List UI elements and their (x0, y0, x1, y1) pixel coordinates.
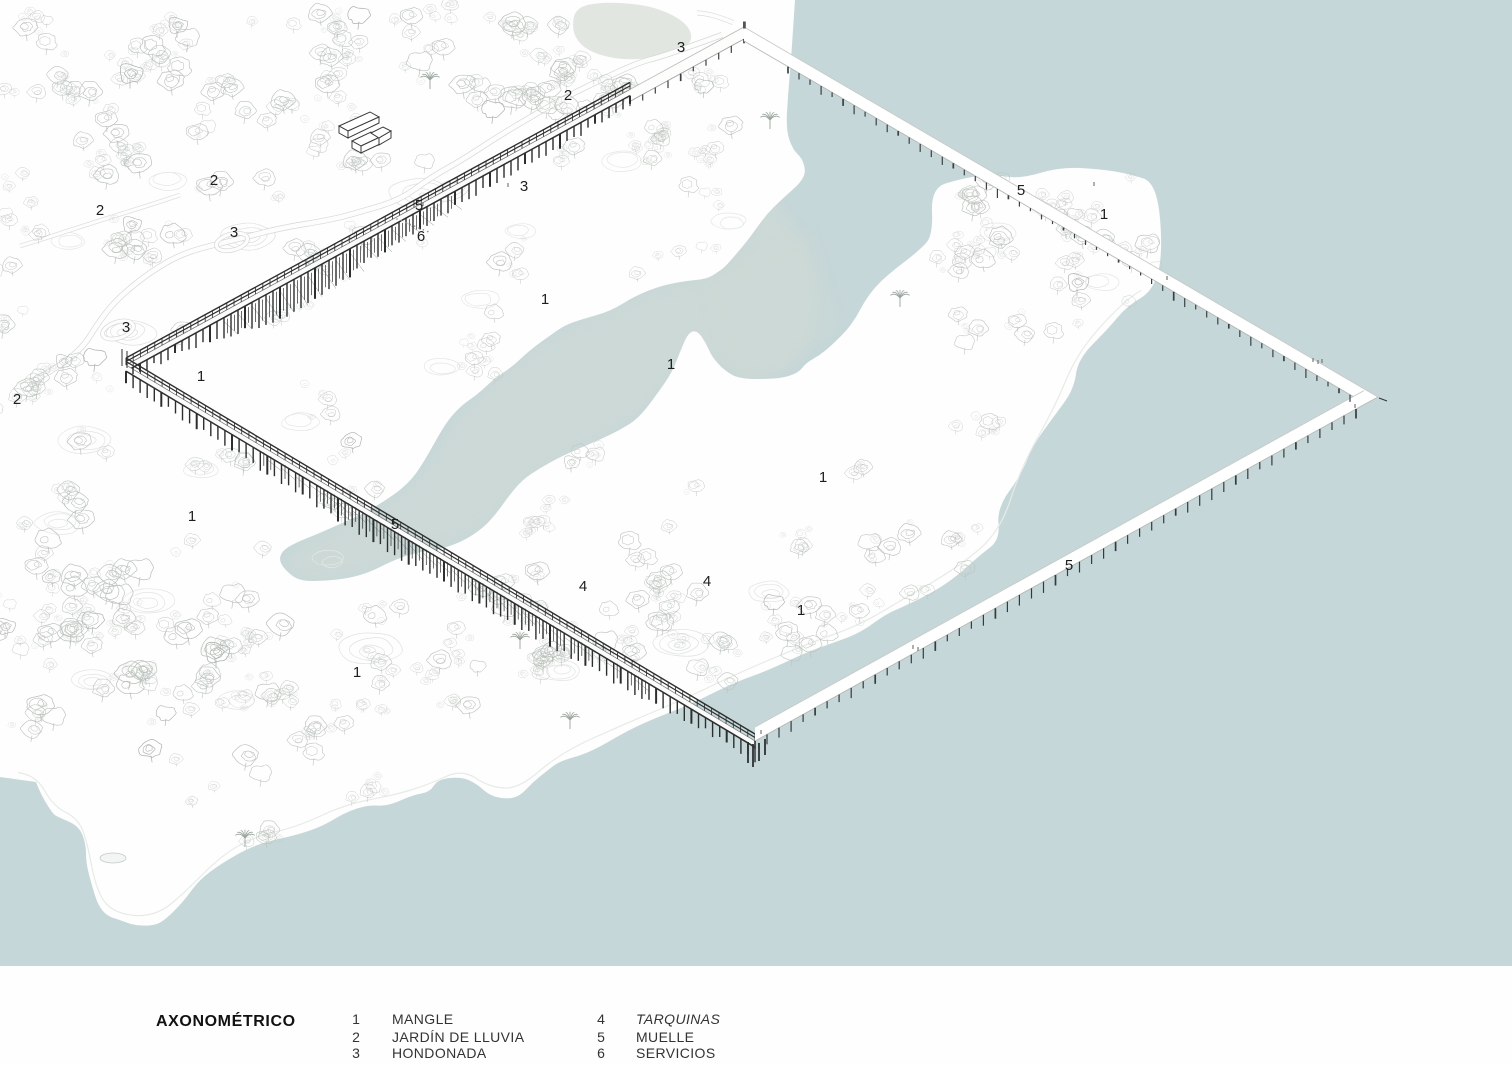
svg-text:2: 2 (352, 1029, 360, 1045)
svg-text:AXONOMÉTRICO: AXONOMÉTRICO (156, 1011, 296, 1030)
svg-text:4: 4 (597, 1011, 605, 1027)
svg-text:HONDONADA: HONDONADA (392, 1045, 487, 1061)
svg-text:3: 3 (520, 178, 528, 195)
svg-text:1: 1 (352, 1011, 360, 1027)
svg-text:1: 1 (197, 368, 205, 385)
svg-text:3: 3 (122, 319, 130, 336)
svg-text:5: 5 (415, 197, 423, 214)
svg-text:5: 5 (1065, 557, 1073, 574)
svg-text:1: 1 (797, 602, 805, 619)
svg-text:1: 1 (1100, 206, 1108, 223)
svg-text:5: 5 (1017, 182, 1025, 199)
svg-text:2: 2 (564, 87, 572, 104)
svg-text:2: 2 (13, 391, 21, 408)
svg-text:2: 2 (96, 202, 104, 219)
svg-text:1: 1 (353, 664, 361, 681)
svg-text:5: 5 (597, 1029, 605, 1045)
svg-text:5: 5 (391, 516, 399, 533)
svg-text:3: 3 (352, 1045, 360, 1061)
svg-text:3: 3 (230, 224, 238, 241)
svg-text:6: 6 (417, 228, 425, 245)
svg-text:1: 1 (667, 356, 675, 373)
svg-text:6: 6 (597, 1045, 605, 1061)
svg-text:4: 4 (703, 573, 711, 590)
svg-text:1: 1 (819, 469, 827, 486)
svg-text:2: 2 (210, 172, 218, 189)
svg-text:3: 3 (677, 39, 685, 56)
svg-text:MANGLE: MANGLE (392, 1011, 454, 1027)
svg-text:JARDÍN DE LLUVIA: JARDÍN DE LLUVIA (392, 1029, 525, 1045)
svg-text:SERVICIOS: SERVICIOS (636, 1045, 716, 1061)
svg-text:1: 1 (541, 291, 549, 308)
svg-text:4: 4 (579, 578, 587, 595)
svg-text:1: 1 (188, 508, 196, 525)
svg-text:MUELLE: MUELLE (636, 1029, 694, 1045)
svg-text:TARQUINAS: TARQUINAS (636, 1011, 720, 1027)
